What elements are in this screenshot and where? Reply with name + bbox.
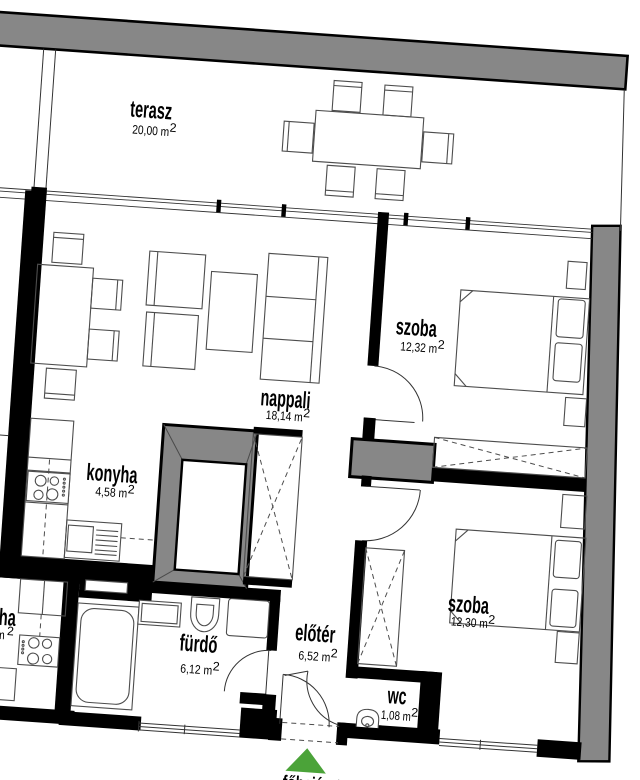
svg-text:2: 2 (488, 612, 496, 626)
svg-text:12,30 m: 12,30 m (450, 614, 488, 631)
svg-text:18,14 m: 18,14 m (265, 408, 303, 425)
svg-text:2: 2 (303, 406, 311, 420)
svg-text:fürdő: fürdő (179, 629, 219, 658)
svg-text:2: 2 (411, 705, 419, 719)
svg-text:6,52 m: 6,52 m (298, 648, 331, 664)
svg-text:2: 2 (127, 482, 135, 496)
svg-text:20,00 m: 20,00 m (132, 123, 170, 140)
svg-text:2: 2 (212, 659, 220, 673)
svg-text:1,08 m: 1,08 m (380, 708, 411, 724)
svg-text:12,32 m: 12,32 m (400, 339, 438, 356)
svg-text:terasz: terasz (129, 96, 173, 125)
svg-text:2: 2 (437, 337, 445, 351)
svg-text:wc: wc (386, 682, 407, 709)
svg-text:2: 2 (330, 646, 338, 660)
svg-text:4,58 m: 4,58 m (95, 484, 128, 500)
svg-text:előtér: előtér (294, 619, 336, 648)
svg-text:6,12 m: 6,12 m (180, 662, 213, 678)
svg-text:2: 2 (169, 121, 177, 135)
svg-text:2: 2 (7, 624, 15, 638)
svg-text:szoba: szoba (395, 313, 438, 342)
